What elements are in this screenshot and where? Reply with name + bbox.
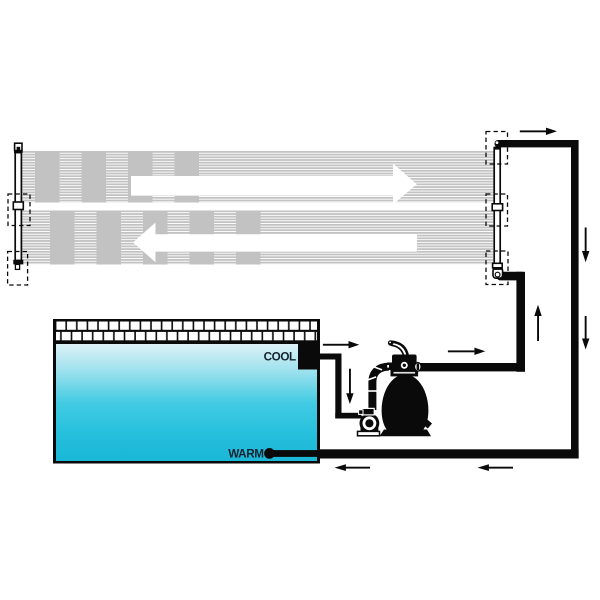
svg-text:WARM: WARM [228, 447, 263, 460]
svg-text:COOL: COOL [264, 350, 296, 363]
